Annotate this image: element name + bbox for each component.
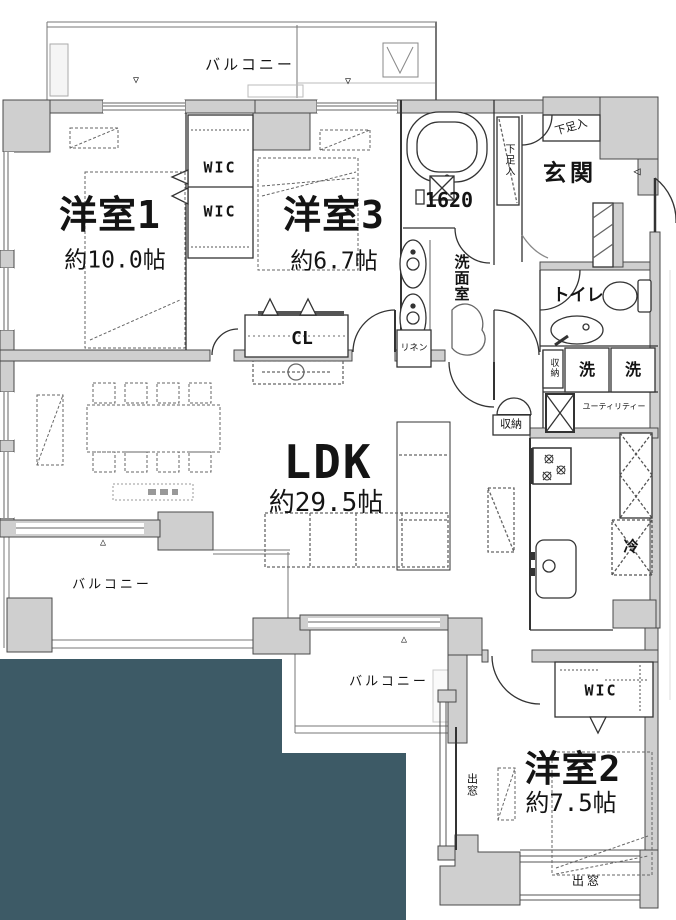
vent-icon: △: [100, 538, 106, 548]
room3-size: 約6.7帖: [290, 251, 378, 274]
wic-lower-label: WIC: [203, 205, 236, 220]
label-balcony-left: バルコニー: [72, 579, 152, 592]
washer-right-label: 洗: [625, 362, 641, 378]
floor-plan: バルコニー ▽ ▽ 洋室1 約10.0帖 WIC WIC 洋室3 約6.7帖 C…: [0, 0, 676, 920]
room1-name: 洋室1: [59, 196, 161, 234]
bay-window-side-label: 出窓: [467, 773, 478, 797]
ldk-name: LDK: [283, 439, 372, 485]
bath-size-label: 1620: [425, 190, 473, 210]
shoe-cabinet-tall-label: 下足入: [503, 144, 513, 177]
storage-ldk-label: 収納: [500, 419, 522, 430]
linen-label: リネン: [400, 345, 427, 354]
washroom-label: 洗面室: [454, 254, 469, 302]
vent-icon: ▽: [345, 77, 351, 87]
vent-icon: △: [401, 635, 407, 645]
label-balcony-bottom: バルコニー: [349, 676, 429, 689]
vent-icon: ▽: [133, 76, 139, 86]
fridge-label: 冷: [623, 540, 638, 555]
closet-cl-label: CL: [291, 330, 313, 348]
wic-room2-label: WIC: [584, 684, 617, 699]
wic-upper-label: WIC: [203, 161, 236, 176]
utility-label: ユーティリティー: [582, 403, 645, 411]
entrance-label: 玄関: [543, 163, 597, 186]
label-balcony-top: バルコニー: [205, 58, 295, 73]
entry-door-icon: ◁: [633, 165, 640, 177]
toilet-label: トイレ: [553, 288, 604, 305]
room1-size: 約10.0帖: [64, 250, 165, 273]
bay-window-bottom-label: 出窓: [572, 875, 602, 887]
room2-size: 約7.5帖: [525, 791, 616, 815]
teal-background: [0, 659, 406, 920]
ldk-size: 約29.5帖: [269, 490, 384, 516]
room2-name: 洋室2: [525, 752, 622, 788]
washer-left-label: 洗: [579, 362, 595, 378]
room3-name: 洋室3: [283, 196, 385, 234]
storage-hall-label: 収納: [549, 358, 558, 378]
